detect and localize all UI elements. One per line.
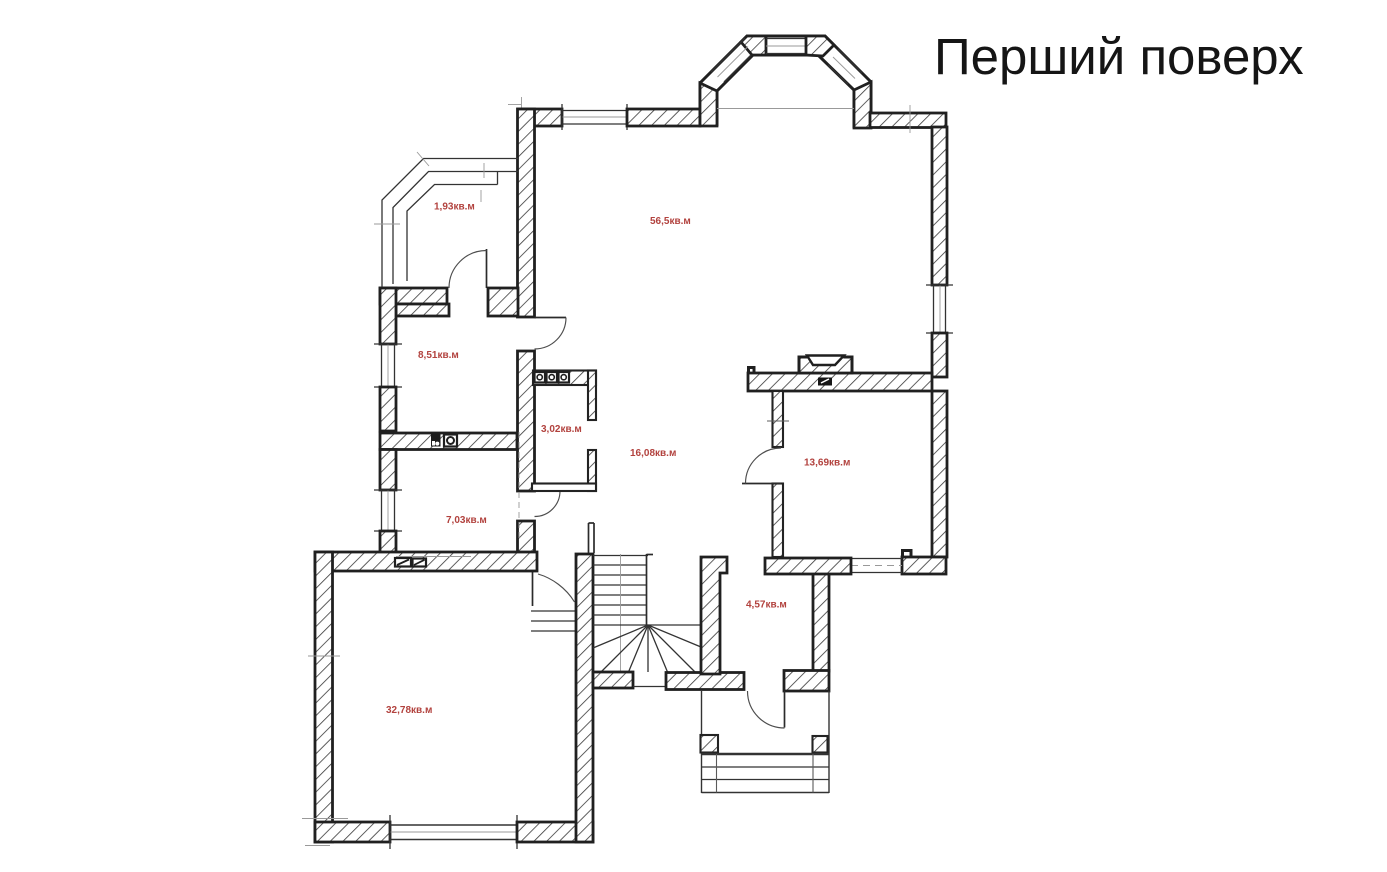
svg-text:7,03кв.м: 7,03кв.м bbox=[446, 515, 487, 526]
svg-text:Перший поверх: Перший поверх bbox=[934, 28, 1304, 85]
svg-text:3,02кв.м: 3,02кв.м bbox=[541, 424, 582, 435]
svg-text:1,93кв.м: 1,93кв.м bbox=[434, 202, 475, 213]
svg-text:56,5кв.м: 56,5кв.м bbox=[650, 216, 691, 227]
svg-text:8,51кв.м: 8,51кв.м bbox=[418, 350, 459, 361]
svg-text:16,08кв.м: 16,08кв.м bbox=[630, 448, 676, 459]
svg-text:4,57кв.м: 4,57кв.м bbox=[746, 600, 787, 611]
svg-text:32,78кв.м: 32,78кв.м bbox=[386, 705, 432, 716]
svg-text:13,69кв.м: 13,69кв.м bbox=[804, 458, 850, 469]
